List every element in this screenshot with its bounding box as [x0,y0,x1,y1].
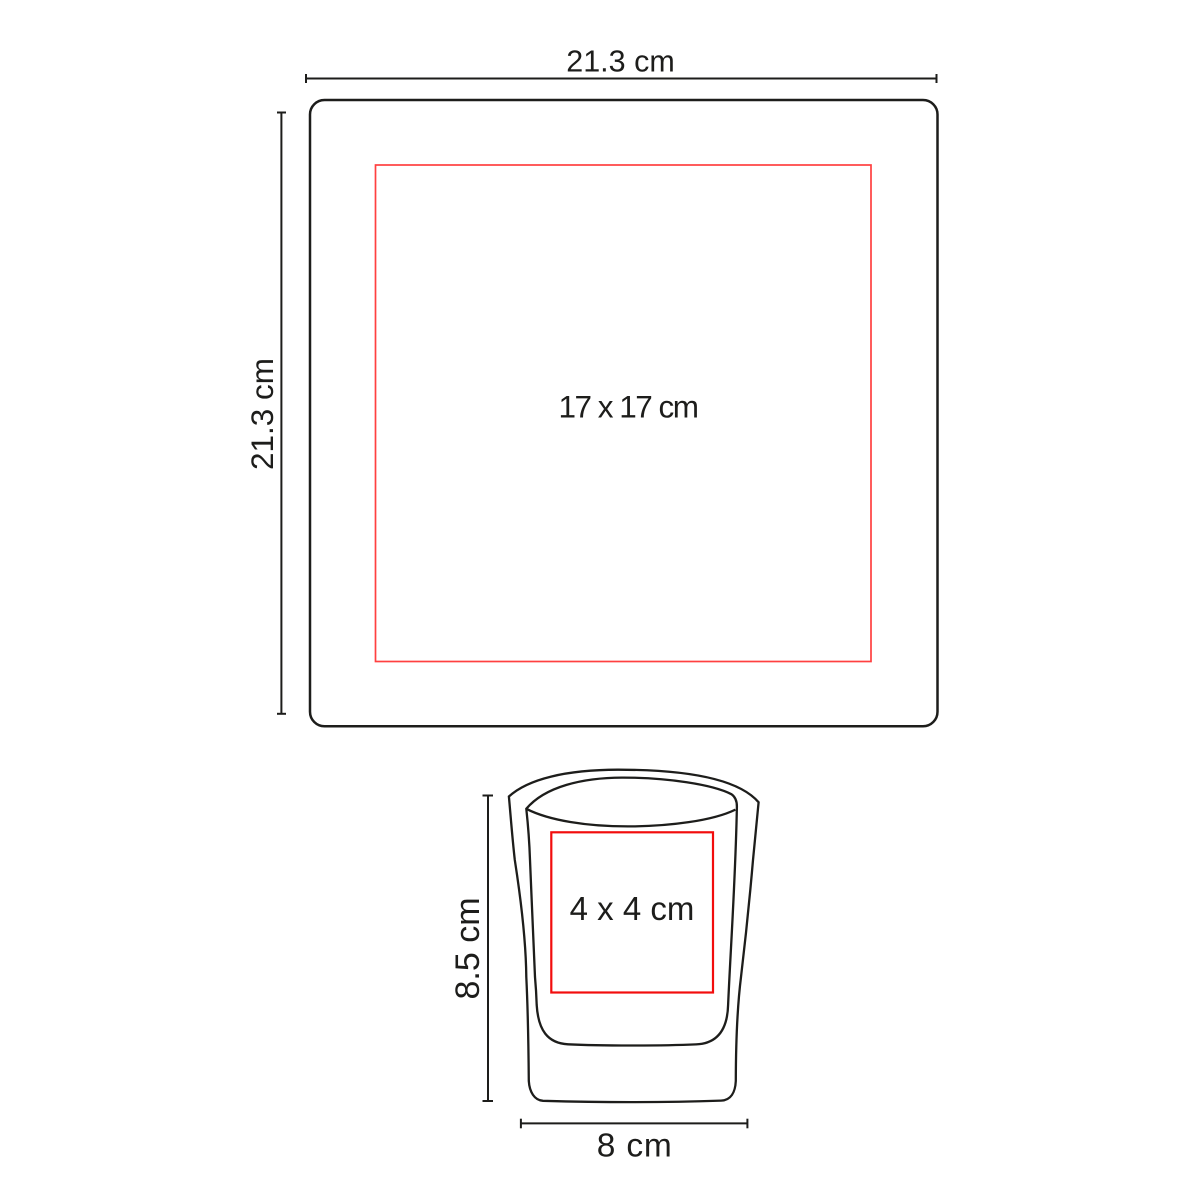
svg-text:4 x 4 cm: 4 x 4 cm [570,890,695,927]
svg-text:8 cm: 8 cm [597,1128,673,1165]
svg-text:21.3 cm: 21.3 cm [244,358,280,470]
svg-text:21.3 cm: 21.3 cm [566,44,675,78]
svg-text:17 x 17 cm: 17 x 17 cm [558,388,697,424]
svg-text:8.5 cm: 8.5 cm [449,897,487,999]
